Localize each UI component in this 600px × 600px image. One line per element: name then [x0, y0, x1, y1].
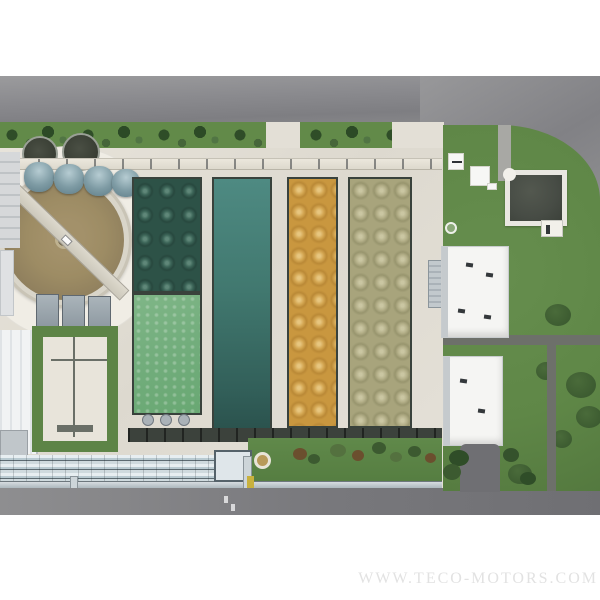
- left-building-mid: [0, 250, 14, 316]
- dome-tank-1: [24, 162, 54, 192]
- left-building-rooftop-unit: [0, 430, 28, 456]
- roof-vent: [466, 263, 473, 268]
- shrub: [425, 453, 436, 463]
- pad-marking: [452, 161, 462, 163]
- aerial-photo: [0, 76, 600, 515]
- road-marking: [224, 496, 228, 503]
- blower-unit-3: [88, 296, 111, 329]
- small-tank-2: [160, 414, 172, 426]
- manhole-ring: [445, 222, 457, 234]
- service-building-upper: [441, 246, 509, 338]
- yard-pad: [57, 425, 93, 432]
- left-building-upper: [0, 152, 20, 248]
- road-marking: [231, 504, 235, 511]
- bridge-trolley: [61, 234, 73, 246]
- bottom-right-access-road: [460, 444, 500, 492]
- roof-vent: [458, 309, 465, 314]
- sedimentation-basin-teal: [212, 177, 272, 430]
- small-tank-3: [178, 414, 190, 426]
- bottom-road: [0, 488, 600, 515]
- shrub: [293, 448, 307, 460]
- annex-vent: [546, 225, 550, 234]
- turf-framed-pad: [32, 326, 118, 452]
- field-path-vertical: [547, 345, 556, 491]
- tree-blob: [576, 406, 600, 428]
- shrub: [352, 450, 364, 461]
- tree-blob: [545, 304, 571, 326]
- dome-tank-2: [54, 164, 84, 194]
- small-tank-1: [142, 414, 154, 426]
- equipment-pad-3: [487, 183, 497, 190]
- dome-tank-3: [84, 166, 114, 196]
- yard-pipe-v: [73, 337, 75, 437]
- shrub: [408, 446, 421, 457]
- yard-pipe-h: [51, 359, 107, 361]
- blower-unit-1: [36, 294, 59, 327]
- square-pool: [510, 175, 562, 221]
- pipe-rack: [0, 455, 250, 481]
- screenshot-canvas: WWW.TECO-MOTORS.COM: [0, 0, 600, 600]
- pool-annex: [541, 220, 563, 237]
- aeration-basin-olive: [348, 177, 412, 428]
- roof-vent: [484, 315, 491, 320]
- shrub: [443, 464, 461, 480]
- shrub: [372, 442, 386, 454]
- roof-vent: [460, 379, 467, 384]
- flower-bed: [254, 452, 271, 469]
- roof-vent: [478, 409, 485, 414]
- yellow-valve-unit: [247, 476, 254, 488]
- aeration-basin-1-lower: [132, 293, 202, 415]
- tree-blob: [566, 372, 596, 398]
- shrub: [503, 448, 519, 462]
- shrub: [330, 444, 346, 457]
- aeration-basin-1-upper: [132, 177, 202, 293]
- pool-corner-platform: [503, 168, 516, 181]
- blower-unit-2: [62, 295, 85, 328]
- shrub: [520, 472, 536, 485]
- aeration-basin-gold: [287, 177, 338, 428]
- equipment-pad-1: [448, 153, 464, 170]
- watermark-text: WWW.TECO-MOTORS.COM: [358, 570, 598, 588]
- shrub: [390, 452, 402, 462]
- shrub: [308, 454, 320, 464]
- roof-vent: [486, 273, 493, 278]
- service-building-lower: [443, 356, 503, 446]
